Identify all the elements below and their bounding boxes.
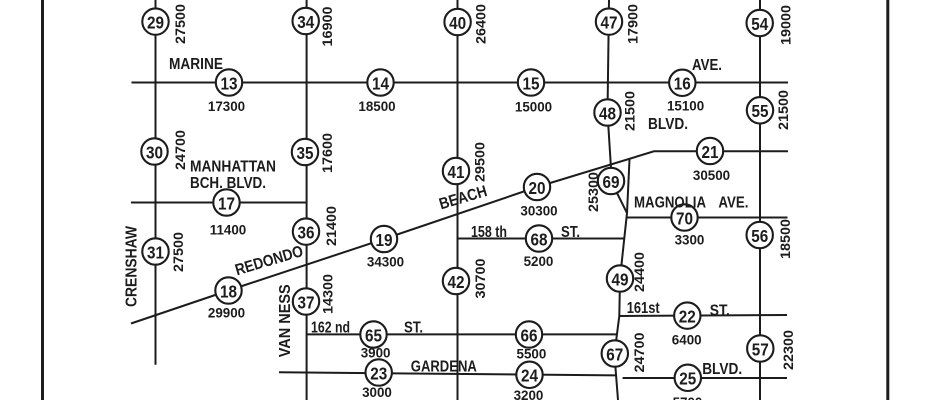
svg-text:35: 35 [297, 143, 314, 163]
svg-text:69: 69 [603, 172, 620, 192]
svg-text:57: 57 [752, 339, 769, 359]
svg-text:34300: 34300 [367, 255, 404, 270]
svg-text:29500: 29500 [473, 142, 488, 182]
svg-text:19000: 19000 [779, 5, 794, 45]
svg-text:5500: 5500 [517, 346, 547, 361]
svg-text:161st: 161st [627, 300, 661, 317]
svg-text:41: 41 [448, 162, 465, 182]
svg-text:BLVD.: BLVD. [702, 361, 742, 378]
svg-text:16900: 16900 [320, 7, 335, 47]
svg-text:30700: 30700 [473, 259, 488, 299]
svg-text:27500: 27500 [173, 4, 188, 44]
svg-text:3900: 3900 [361, 346, 391, 361]
svg-text:54: 54 [751, 14, 768, 34]
svg-text:14: 14 [372, 73, 389, 93]
svg-text:48: 48 [599, 103, 616, 123]
svg-text:40: 40 [449, 13, 466, 33]
svg-text:ST.: ST. [404, 320, 423, 337]
svg-text:5200: 5200 [524, 254, 554, 269]
svg-text:29900: 29900 [208, 306, 245, 321]
svg-text:21500: 21500 [776, 90, 791, 130]
svg-text:18500: 18500 [358, 99, 395, 114]
svg-text:3000: 3000 [362, 385, 392, 400]
svg-text:AVE.: AVE. [718, 195, 748, 212]
svg-text:VAN NESS: VAN NESS [277, 284, 294, 357]
svg-text:BCH. BLVD.: BCH. BLVD. [190, 175, 266, 192]
svg-text:21400: 21400 [324, 206, 339, 246]
svg-text:16: 16 [674, 74, 691, 94]
svg-text:19: 19 [376, 230, 393, 250]
svg-text:24700: 24700 [632, 333, 647, 373]
svg-text:3300: 3300 [675, 233, 705, 248]
svg-text:25: 25 [679, 369, 696, 389]
svg-text:22: 22 [679, 306, 696, 326]
svg-text:23: 23 [370, 363, 387, 383]
svg-text:ST.: ST. [710, 303, 730, 320]
svg-text:37: 37 [298, 292, 315, 312]
svg-text:17900: 17900 [626, 4, 641, 44]
svg-text:MARINE: MARINE [169, 56, 223, 73]
svg-text:ST.: ST. [561, 224, 580, 241]
svg-text:36: 36 [298, 222, 315, 242]
svg-text:MANHATTAN: MANHATTAN [190, 159, 276, 176]
svg-text:31: 31 [147, 242, 164, 262]
svg-text:24: 24 [521, 366, 538, 386]
svg-text:47: 47 [601, 12, 618, 32]
svg-text:30: 30 [146, 142, 163, 162]
svg-text:21500: 21500 [623, 91, 638, 131]
svg-text:20: 20 [529, 178, 546, 198]
svg-text:49: 49 [612, 269, 629, 289]
svg-text:AVE.: AVE. [692, 57, 722, 74]
svg-text:17300: 17300 [208, 99, 245, 114]
svg-text:24400: 24400 [632, 252, 647, 292]
svg-text:66: 66 [521, 325, 538, 345]
svg-text:5700: 5700 [673, 395, 703, 400]
svg-text:18: 18 [220, 281, 237, 301]
svg-text:GARDENA: GARDENA [411, 359, 477, 376]
svg-text:15100: 15100 [667, 99, 704, 114]
svg-text:29: 29 [147, 12, 164, 32]
svg-text:30500: 30500 [693, 168, 730, 183]
svg-text:MAGNOLIA: MAGNOLIA [634, 195, 706, 212]
svg-text:65: 65 [365, 325, 382, 345]
svg-text:55: 55 [752, 101, 769, 121]
svg-text:22300: 22300 [781, 330, 796, 370]
svg-text:56: 56 [751, 226, 768, 246]
svg-text:26400: 26400 [474, 4, 489, 44]
svg-text:6400: 6400 [672, 333, 702, 348]
svg-text:11400: 11400 [210, 223, 247, 238]
svg-text:158 th: 158 th [471, 224, 507, 241]
svg-text:CRENSHAW: CRENSHAW [124, 225, 141, 307]
svg-text:162 nd: 162 nd [311, 320, 350, 337]
svg-text:27500: 27500 [171, 232, 186, 272]
svg-text:15000: 15000 [515, 100, 552, 115]
svg-text:68: 68 [531, 229, 548, 249]
svg-text:17: 17 [218, 193, 235, 213]
svg-text:13: 13 [221, 73, 238, 93]
svg-text:15: 15 [523, 73, 540, 93]
svg-text:67: 67 [606, 344, 623, 364]
svg-text:42: 42 [448, 272, 465, 292]
svg-text:14300: 14300 [321, 274, 336, 314]
svg-text:24700: 24700 [173, 130, 188, 170]
svg-text:17600: 17600 [320, 133, 335, 173]
svg-text:18500: 18500 [778, 219, 793, 259]
svg-text:21: 21 [702, 142, 719, 162]
svg-text:30300: 30300 [520, 204, 557, 219]
svg-text:25300: 25300 [586, 172, 601, 212]
svg-text:BLVD.: BLVD. [648, 116, 688, 133]
svg-text:34: 34 [297, 12, 314, 32]
svg-text:3200: 3200 [514, 388, 544, 400]
